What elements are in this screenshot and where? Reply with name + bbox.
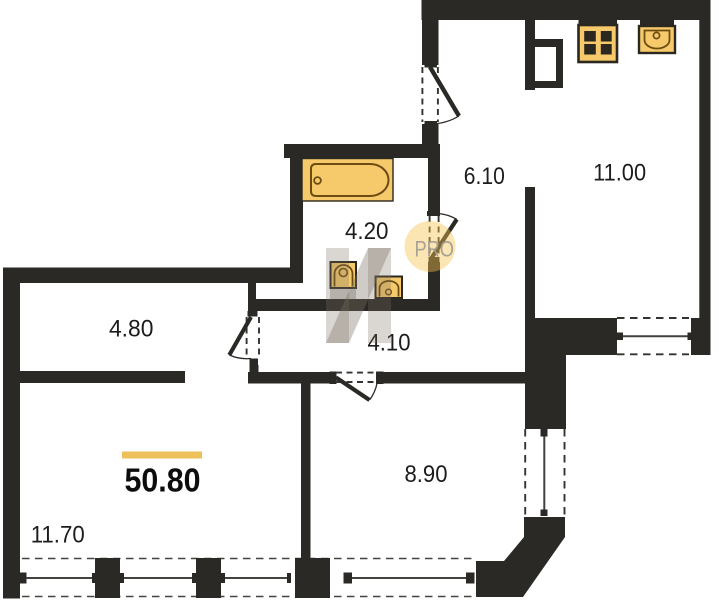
- svg-text:4.20: 4.20: [345, 218, 389, 245]
- svg-text:6.10: 6.10: [464, 163, 505, 190]
- svg-text:8.90: 8.90: [405, 461, 448, 488]
- svg-text:50.80: 50.80: [125, 461, 201, 498]
- svg-text:11.70: 11.70: [31, 522, 85, 549]
- svg-text:PRO: PRO: [414, 237, 454, 262]
- svg-text:11.00: 11.00: [593, 160, 646, 187]
- svg-text:4.80: 4.80: [109, 315, 154, 342]
